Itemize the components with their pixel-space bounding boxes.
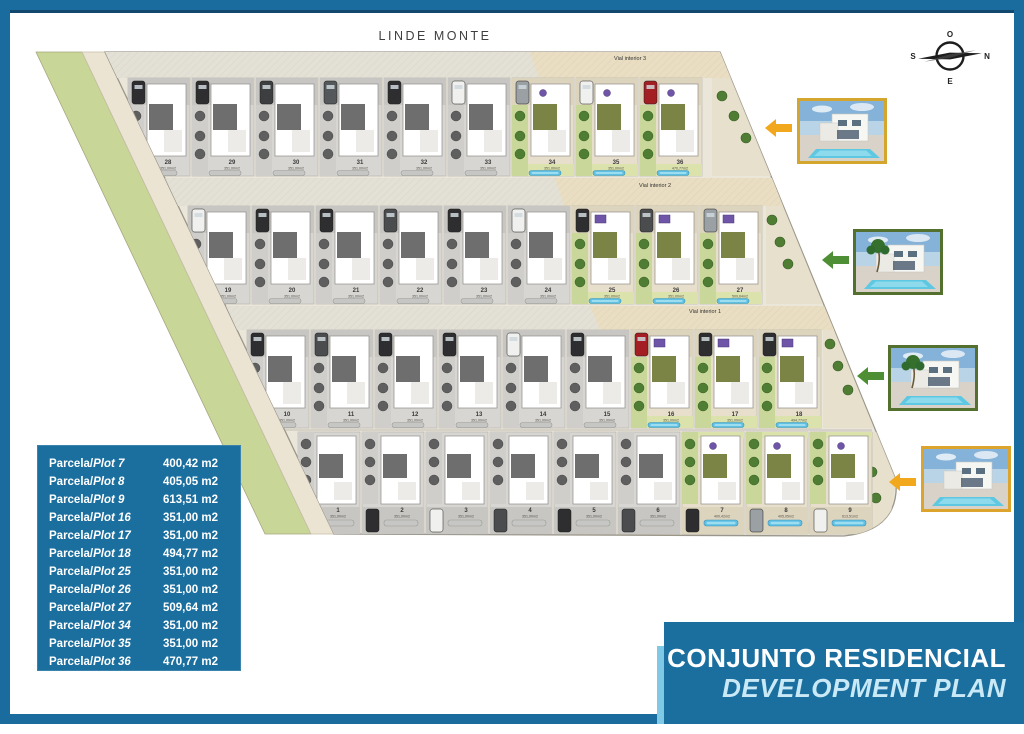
car-windshield [318, 337, 326, 341]
plot-label: Parcela/Plot 17 [49, 527, 131, 545]
roof-patch [149, 104, 173, 130]
plot-area: 351,00m2 [160, 167, 176, 171]
car-icon [320, 209, 333, 232]
plot-number: 29 [229, 160, 236, 166]
tree-icon [195, 111, 205, 121]
terrace [603, 382, 621, 404]
terrace [356, 130, 374, 152]
plot-area: 494,77m2 [791, 419, 807, 423]
frame-top-line [10, 10, 1014, 13]
tree-icon [749, 439, 759, 449]
roof-patch [469, 104, 493, 130]
roof-garden [780, 356, 804, 382]
car-windshield [643, 213, 651, 217]
compass-rose-icon: O N E S [908, 24, 992, 90]
plot-label: Parcela/Plot 8 [49, 473, 124, 491]
title-accent-bar [657, 646, 664, 724]
pool [584, 423, 616, 428]
pool [397, 299, 429, 304]
plot-5: 5351,00m2 [554, 432, 616, 534]
roof-patch [396, 356, 420, 382]
tree-icon [383, 239, 393, 249]
plot-label: Parcela/Plot 18 [49, 545, 131, 563]
tree-icon [698, 363, 708, 373]
tree-icon [579, 111, 589, 121]
compass-letter-south: S [910, 52, 916, 61]
plot-area-value: 351,00 m2 [163, 509, 229, 527]
roof-patch [341, 104, 365, 130]
car-windshield [574, 337, 582, 341]
plot-number: 31 [357, 160, 364, 166]
title-block: CONJUNTO RESIDENCIAL DEVELOPMENT PLAN [664, 622, 1024, 724]
car-icon [686, 509, 699, 532]
tree-icon [643, 111, 653, 121]
tree-icon [259, 111, 269, 121]
tree-icon [767, 215, 777, 225]
pool [401, 171, 433, 176]
terrace [654, 482, 672, 500]
plot-number: 33 [485, 160, 492, 166]
tree-icon [429, 439, 439, 449]
terrace [352, 258, 370, 280]
tree-icon [255, 259, 265, 269]
plot-area: 351,00m2 [471, 419, 487, 423]
solar-panel [723, 215, 734, 223]
terrace [782, 482, 800, 500]
car-icon [196, 81, 209, 104]
plot-number: 14 [540, 412, 547, 418]
villa-photo-2 [853, 229, 943, 295]
car-icon [763, 333, 776, 356]
tree-icon [255, 239, 265, 249]
terrace [846, 482, 864, 500]
left-arrow-icon [822, 250, 850, 275]
pool-water [720, 300, 747, 302]
plot-15: 15351,00m2 [567, 330, 629, 428]
plot-area: 405,05m2 [778, 515, 794, 519]
car-icon [260, 81, 273, 104]
window [943, 367, 952, 373]
tree-icon [570, 363, 580, 373]
plot-area: 351,00m2 [352, 167, 368, 171]
car-windshield [579, 213, 587, 217]
table-row: Parcela/Plot 18494,77 m2 [49, 545, 229, 563]
roof-garden [703, 454, 727, 478]
car-icon [580, 81, 593, 104]
car-icon [366, 509, 379, 532]
tree-icon [383, 277, 393, 287]
tree-icon [506, 401, 516, 411]
terrace [398, 482, 416, 500]
tree-icon [575, 259, 585, 269]
pool-water [870, 282, 928, 288]
terrace [484, 130, 502, 152]
pool-water [596, 172, 623, 174]
car-icon [750, 509, 763, 532]
tree-icon [813, 475, 823, 485]
terrace [795, 382, 813, 404]
plot-area-value: 494,77 m2 [163, 545, 229, 563]
plot-18: 18494,77m2 [759, 330, 821, 428]
tree-icon [442, 363, 452, 373]
tree-icon [493, 439, 503, 449]
tree-icon [557, 475, 567, 485]
table-row: Parcela/Plot 34351,00 m2 [49, 617, 229, 635]
plot-17: 17351,00m2 [695, 330, 757, 428]
plot-label: Parcela/Plot 26 [49, 581, 131, 599]
car-icon [640, 209, 653, 232]
car-icon [443, 333, 456, 356]
terrace [292, 130, 310, 152]
plot-number: 15 [604, 412, 611, 418]
pool-water [651, 424, 678, 426]
plot-7: 7400,42m2 [682, 432, 744, 534]
car-windshield [510, 337, 518, 341]
cloud [812, 106, 832, 113]
plot-22: 22351,00m2 [380, 206, 442, 304]
pool [273, 171, 305, 176]
solar-panel [595, 215, 606, 223]
tree-icon [639, 239, 649, 249]
table-row: Parcela/Plot 16351,00 m2 [49, 509, 229, 527]
villa-wing [820, 123, 838, 141]
plot-26: 26351,00m2 [636, 206, 698, 304]
plot-area-value: 351,00 m2 [163, 527, 229, 545]
terrace [288, 258, 306, 280]
cloud [850, 103, 874, 111]
skylight [540, 90, 547, 97]
car-icon [571, 333, 584, 356]
car-icon [644, 81, 657, 104]
plot-area: 351,00m2 [348, 295, 364, 299]
car-icon [452, 81, 465, 104]
tree-icon [378, 383, 388, 393]
plot-number: 17 [732, 412, 739, 418]
car-windshield [446, 337, 454, 341]
plot-9: 9613,51m2 [810, 432, 872, 534]
plot-number: 18 [796, 412, 803, 418]
title-line-1: CONJUNTO RESIDENCIAL [667, 643, 1006, 673]
roof-patch [213, 104, 237, 130]
roof-garden [533, 104, 557, 130]
tree-icon [429, 457, 439, 467]
window [976, 468, 985, 474]
car-icon [516, 81, 529, 104]
road-hatch [165, 178, 783, 206]
plot-number: 16 [668, 412, 675, 418]
villa-wing [944, 471, 962, 489]
roof-patch [529, 232, 553, 258]
glass-doors [893, 261, 915, 270]
tree-icon [643, 149, 653, 159]
roof-patch [268, 356, 292, 382]
plot-32: 32351,00m2 [384, 78, 446, 176]
tree-icon [639, 259, 649, 269]
plot-area: 351,00m2 [412, 295, 428, 299]
window [838, 120, 847, 126]
car-icon [635, 333, 648, 356]
plot-label: Parcela/Plot 9 [49, 491, 124, 509]
tree-icon [570, 383, 580, 393]
cloud [941, 350, 965, 358]
plot-number: 32 [421, 160, 428, 166]
tree-icon [319, 259, 329, 269]
villa-render [891, 348, 975, 408]
plot-area: 351,00m2 [220, 295, 236, 299]
tree-icon [685, 475, 695, 485]
plot-35: 35351,00m2 [576, 78, 638, 176]
plot-area: 351,00m2 [343, 419, 359, 423]
plot-23: 23351,00m2 [444, 206, 506, 304]
left-arrow-icon [857, 366, 885, 391]
cloud [974, 451, 998, 459]
terrace [228, 130, 246, 152]
tree-icon [515, 111, 525, 121]
tree-icon [451, 131, 461, 141]
pool [333, 299, 365, 304]
plot-36: 36470,77m2 [640, 78, 702, 176]
car-windshield [455, 85, 463, 89]
plot-area: 351,00m2 [407, 419, 423, 423]
palm-leaves-icon [867, 246, 876, 255]
compass-needle [918, 50, 982, 63]
car-windshield [391, 85, 399, 89]
terrace [283, 382, 301, 404]
roof-patch [511, 454, 535, 478]
tree-icon [749, 475, 759, 485]
tree-icon [314, 363, 324, 373]
roof-garden [597, 104, 621, 130]
window [929, 367, 938, 373]
tree-icon [259, 131, 269, 141]
road-label: Vial interior 3 [614, 56, 646, 62]
terrace [539, 382, 557, 404]
car-windshield [199, 85, 207, 89]
tree-icon [319, 239, 329, 249]
plot-area-value: 470,77 m2 [163, 653, 229, 671]
compass-letter-east: E [947, 77, 953, 86]
tree-icon [429, 475, 439, 485]
car-windshield [702, 337, 710, 341]
window [852, 120, 861, 126]
table-row: Parcela/Plot 17351,00 m2 [49, 527, 229, 545]
plot-label: Parcela/Plot 16 [49, 509, 131, 527]
tree-icon [871, 493, 881, 503]
tree-icon [749, 457, 759, 467]
pool [392, 423, 424, 428]
plot-label: Parcela/Plot 27 [49, 599, 131, 617]
car-windshield [323, 213, 331, 217]
terrace [676, 130, 694, 152]
tree-icon [451, 149, 461, 159]
car-icon [814, 509, 827, 532]
pool-water [656, 300, 683, 302]
plot-number: 26 [673, 288, 680, 294]
pool-water [835, 522, 864, 524]
terrace [164, 130, 182, 152]
plot-number: 35 [613, 160, 620, 166]
plot-label: Parcela/Plot 35 [49, 635, 131, 653]
car-icon [256, 209, 269, 232]
terrace [334, 482, 352, 500]
plot-area-value: 351,00 m2 [163, 617, 229, 635]
tree-icon [378, 401, 388, 411]
car-windshield [382, 337, 390, 341]
plot-area: 470,77m2 [672, 167, 688, 171]
car-icon [132, 81, 145, 104]
tree-icon [511, 239, 521, 249]
plot-number: 23 [481, 288, 488, 294]
pool-water [715, 424, 742, 426]
car-icon [507, 333, 520, 356]
roof-patch [524, 356, 548, 382]
plot-area-value: 405,05 m2 [163, 473, 229, 491]
pool-water [532, 172, 559, 174]
car-windshield [766, 337, 774, 341]
tree-icon [621, 475, 631, 485]
left-arrow-icon [765, 118, 793, 143]
plot-label: Parcela/Plot 25 [49, 563, 131, 581]
plot-33: 33351,00m2 [448, 78, 510, 176]
tree-icon [575, 239, 585, 249]
compass-letter-west: O [947, 30, 953, 39]
plot-label: Parcela/Plot 7 [49, 455, 124, 473]
plot-number: 12 [412, 412, 419, 418]
tree-icon [843, 385, 853, 395]
car-icon [699, 333, 712, 356]
terrace [526, 482, 544, 500]
skylight [710, 443, 717, 450]
plot-number: 21 [353, 288, 360, 294]
tree-icon [515, 149, 525, 159]
plot-area: 351,00m2 [284, 295, 300, 299]
tree-icon [387, 111, 397, 121]
tree-icon [825, 339, 835, 349]
roof-patch [273, 232, 297, 258]
table-row: Parcela/Plot 9613,51 m2 [49, 491, 229, 509]
car-windshield [583, 85, 591, 89]
plot-area: 351,00m2 [480, 167, 496, 171]
plot-number: 11 [348, 412, 355, 418]
car-icon [315, 333, 328, 356]
tree-icon [698, 383, 708, 393]
tree-icon [323, 111, 333, 121]
plot-24: 24351,00m2 [508, 206, 570, 304]
tree-icon [511, 277, 521, 287]
plot-area-value: 351,00 m2 [163, 635, 229, 653]
plot-11: 11351,00m2 [311, 330, 373, 428]
skylight [604, 90, 611, 97]
car-windshield [259, 213, 267, 217]
cloud [936, 454, 956, 461]
plot-area: 351,00m2 [599, 419, 615, 423]
plot-area: 351,00m2 [288, 167, 304, 171]
plot-20: 20351,00m2 [252, 206, 314, 304]
terrace [411, 382, 429, 404]
plot-13: 13351,00m2 [439, 330, 501, 428]
tree-icon [301, 439, 311, 449]
table-row: Parcela/Plot 27509,64 m2 [49, 599, 229, 617]
tree-icon [762, 383, 772, 393]
car-icon [379, 333, 392, 356]
tree-icon [451, 111, 461, 121]
plot-number: 10 [284, 412, 291, 418]
plot-number: 25 [609, 288, 616, 294]
roof-patch [447, 454, 471, 478]
plot-area-value: 613,51 m2 [163, 491, 229, 509]
street-label: LINDE MONTE [360, 29, 510, 43]
plot-6: 6351,00m2 [618, 432, 680, 534]
pool [520, 423, 552, 428]
roof-patch [460, 356, 484, 382]
tree-icon [762, 401, 772, 411]
car-icon [622, 509, 635, 532]
car-windshield [451, 213, 459, 217]
car-windshield [707, 213, 715, 217]
cloud [906, 234, 930, 242]
palm-leaves-icon [902, 362, 911, 371]
plot-number: 24 [545, 288, 552, 294]
roof-garden [767, 454, 791, 478]
compass-letter-north: N [984, 52, 990, 61]
plot-area: 613,51m2 [842, 515, 858, 519]
tree-icon [447, 277, 457, 287]
road-hatch [226, 306, 834, 330]
pool [328, 423, 360, 428]
car-windshield [195, 213, 203, 217]
plot-area: 351,00m2 [458, 515, 474, 519]
tree-icon [741, 133, 751, 143]
car-windshield [647, 85, 655, 89]
pool [512, 520, 546, 526]
plot-3: 3351,00m2 [426, 432, 488, 534]
tree-icon [314, 383, 324, 393]
car-icon [494, 509, 507, 532]
pool [384, 520, 418, 526]
tree-icon [314, 401, 324, 411]
villa-photo-4 [921, 446, 1011, 512]
car-windshield [135, 85, 143, 89]
plot-16: 16351,00m2 [631, 330, 693, 428]
pool-water [592, 300, 619, 302]
pool-water [779, 424, 806, 426]
roof-patch [465, 232, 489, 258]
terrace [416, 258, 434, 280]
plot-area: 351,00m2 [535, 419, 551, 423]
terrace [347, 382, 365, 404]
pool [448, 520, 482, 526]
solar-panel [718, 339, 729, 347]
terrace [462, 482, 480, 500]
skylight [668, 90, 675, 97]
tree-icon [813, 457, 823, 467]
tree-icon [717, 91, 727, 101]
terrace [612, 130, 630, 152]
table-row: Parcela/Plot 26351,00 m2 [49, 581, 229, 599]
plot-area: 351,00m2 [727, 419, 743, 423]
plot-2: 2351,00m2 [362, 432, 424, 534]
pool-water [707, 522, 736, 524]
car-icon [576, 209, 589, 232]
car-icon [704, 209, 717, 232]
solar-panel [782, 339, 793, 347]
plot-area: 351,00m2 [224, 167, 240, 171]
plot-area-value: 509,64 m2 [163, 599, 229, 617]
tree-icon [447, 239, 457, 249]
plot-area: 351,00m2 [279, 419, 295, 423]
terrace [736, 258, 754, 280]
tree-icon [579, 131, 589, 141]
